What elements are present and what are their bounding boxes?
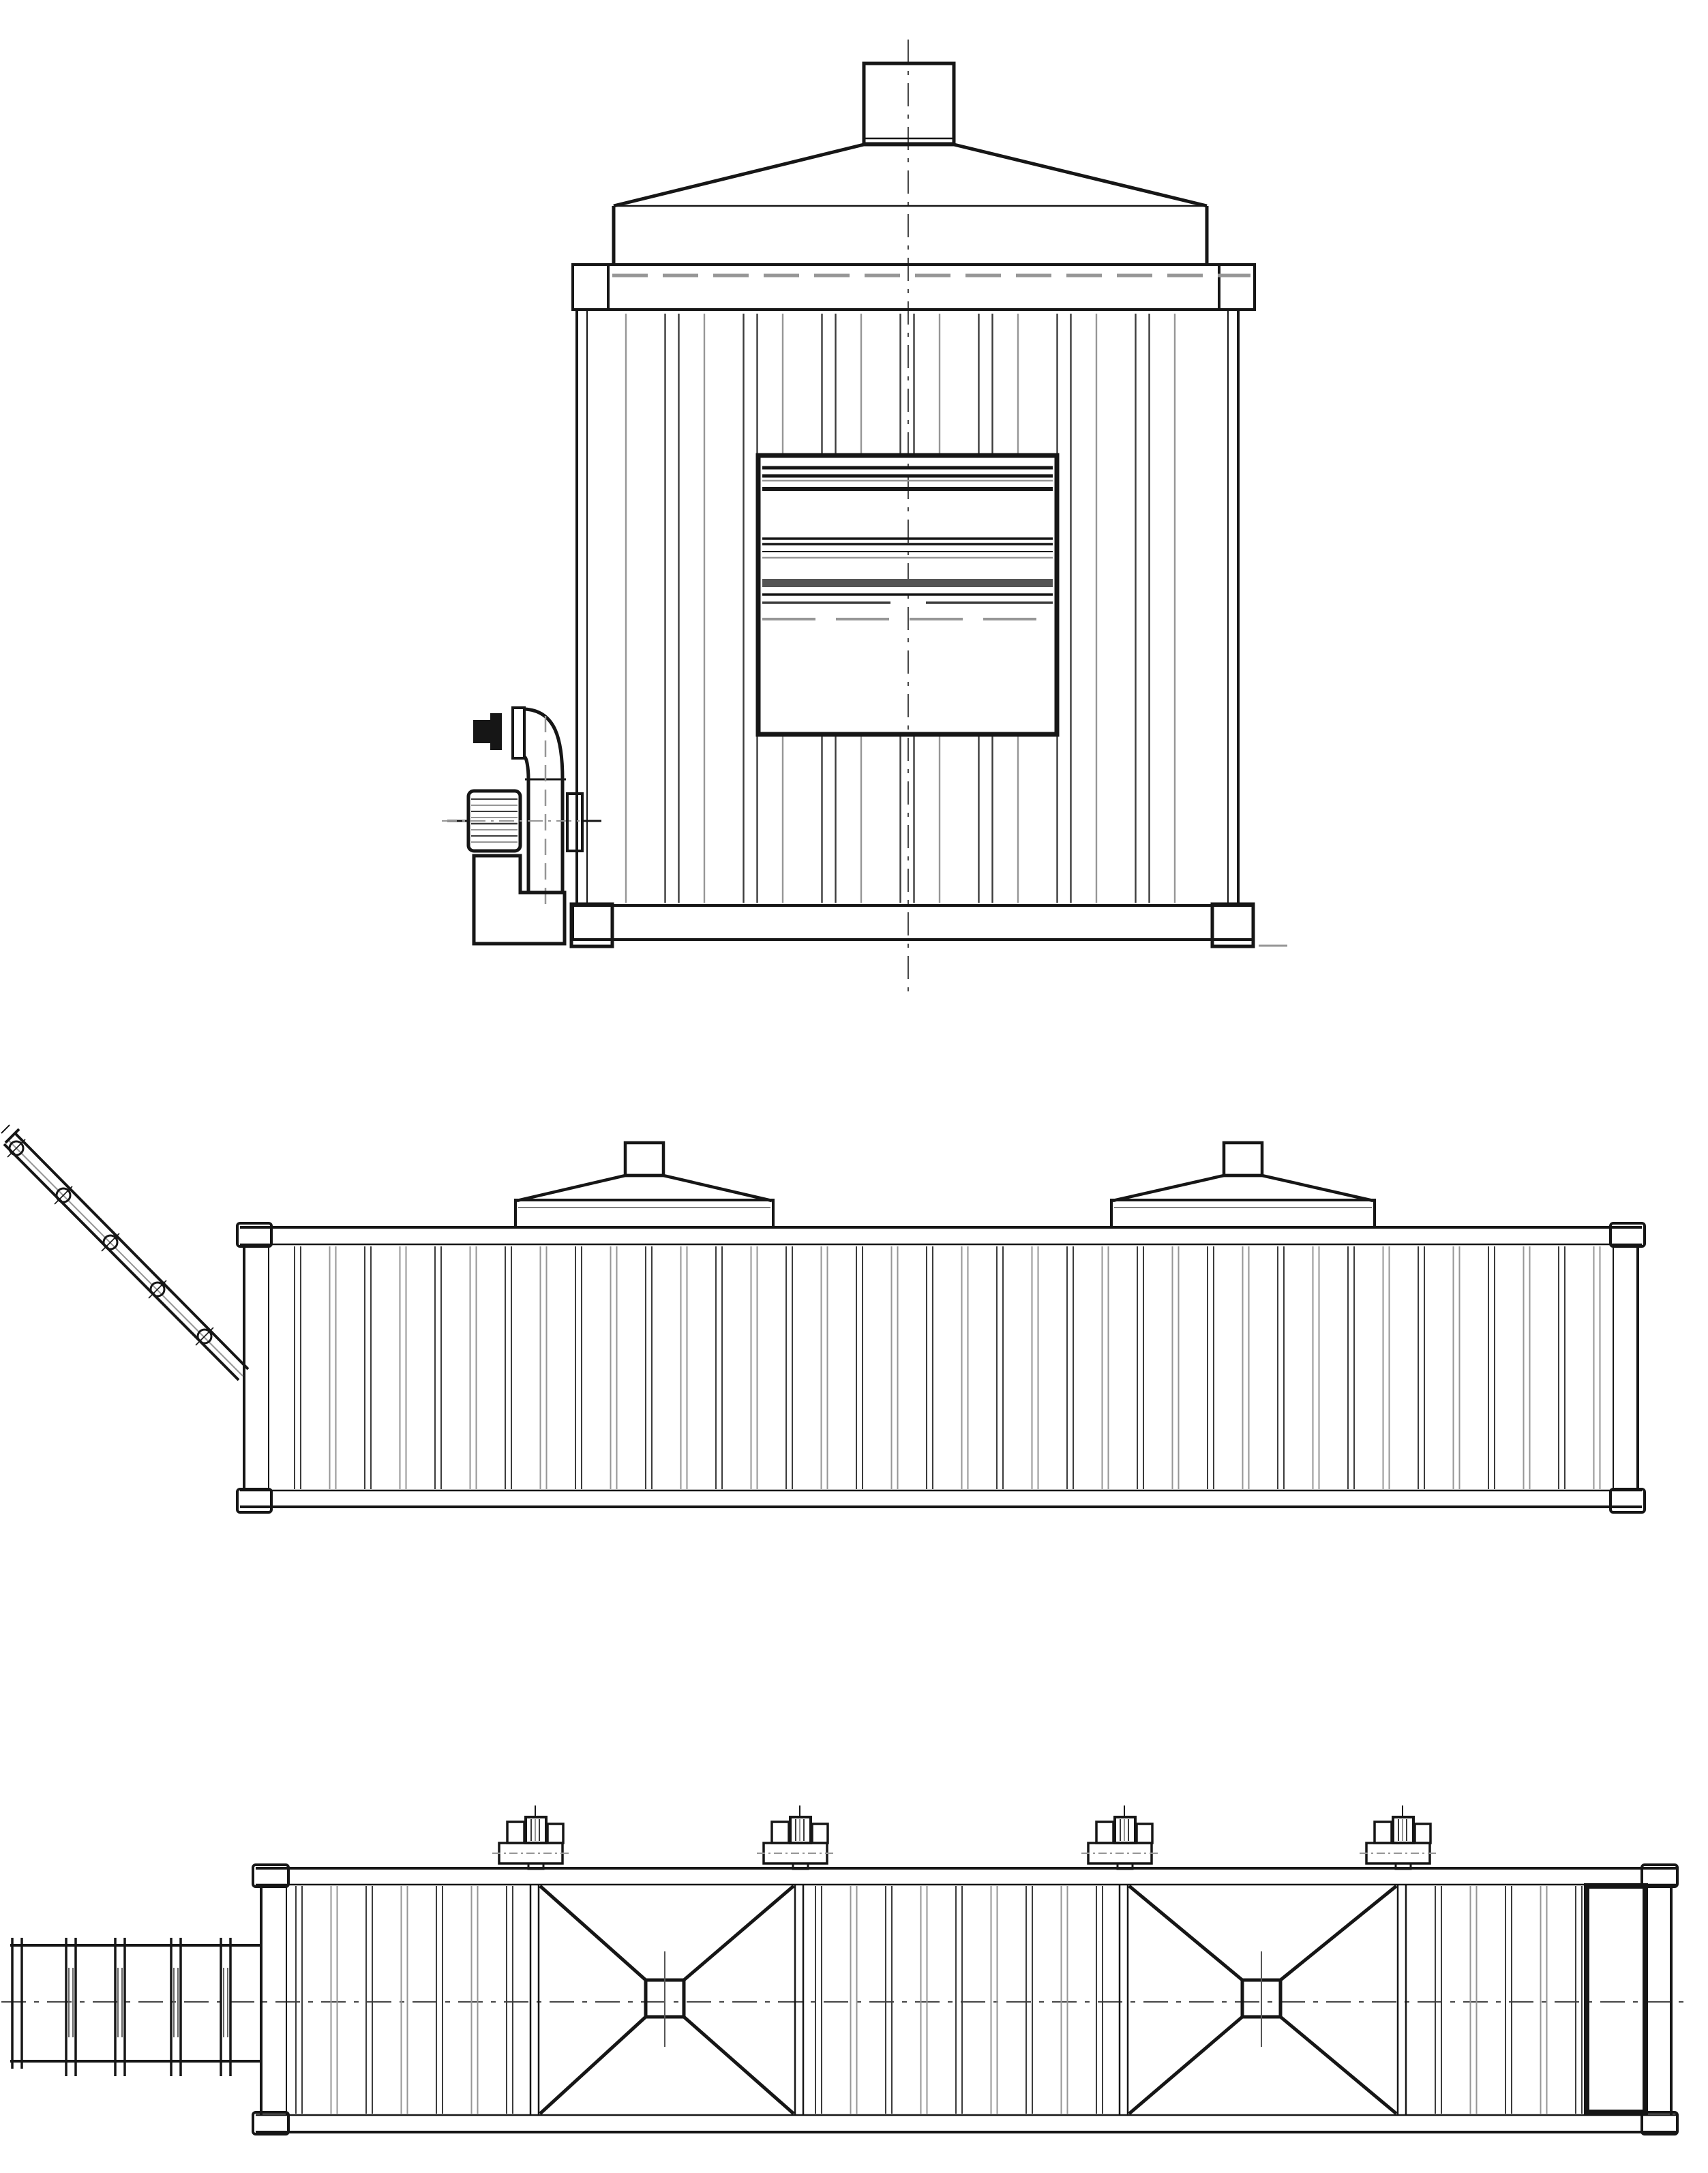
x-brace-panel-2 [1129, 1886, 1396, 2114]
top-flange-band [573, 265, 1255, 310]
discharge-pipe [10, 1938, 261, 2076]
top-frame [237, 1223, 1645, 1246]
blower-assembly [442, 708, 604, 944]
side-walls [244, 1244, 1638, 1490]
corrugated-wall [626, 314, 1175, 903]
bottom-frame [571, 904, 1287, 946]
front-elevation-view [442, 40, 1287, 997]
side-elevation-view [1, 1125, 1645, 1512]
bottom-frame [253, 2112, 1677, 2134]
x-brace-panel-1 [540, 1886, 794, 2114]
side-walls [261, 1885, 1671, 2115]
top-frame [253, 1865, 1677, 1887]
roof-hood-2 [1111, 1143, 1375, 1227]
roof-hood-1 [515, 1143, 773, 1227]
bottom-frame [237, 1489, 1645, 1512]
corrugated-wall [295, 1246, 1600, 1489]
inclined-conveyor [1, 1125, 248, 1380]
roof-fittings [492, 1805, 1436, 1869]
panel-dividers [530, 1885, 1406, 2115]
technical-drawing-canvas [0, 0, 1708, 2173]
rear-elevation-view [1, 1805, 1690, 2134]
drawing-sheet [0, 0, 1708, 2173]
corrugated-sections [296, 1886, 1582, 2114]
roof-hood [614, 145, 1207, 266]
end-door-panel [1587, 1886, 1645, 2112]
